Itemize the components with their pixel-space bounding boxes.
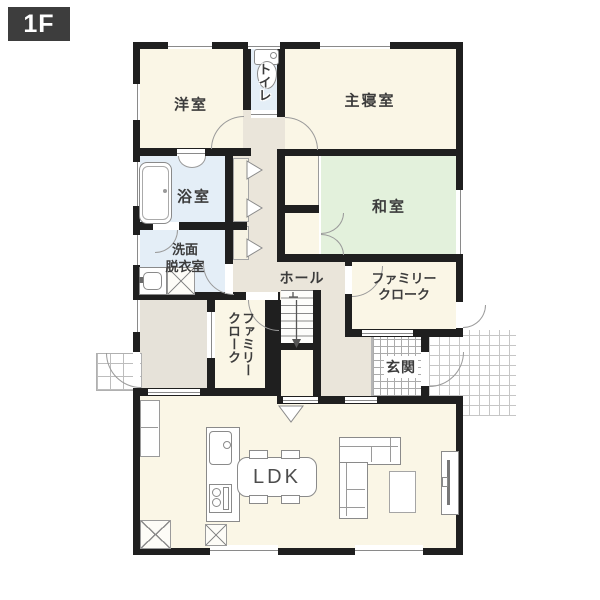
closet-door-opening [345, 266, 352, 294]
sliding-door [283, 397, 318, 403]
stairs [281, 290, 313, 343]
sliding-door [362, 330, 413, 336]
label-washroom-line2: 脱衣室 [165, 258, 204, 275]
label-master-bedroom: 主寝室 [344, 90, 395, 111]
door-arc-closet-exterior [463, 305, 486, 328]
label-family-closet-west-line1: ファミリー [240, 312, 255, 377]
closet-door-opening [246, 292, 278, 300]
sliding-door [345, 397, 377, 403]
label-washroom: 洗面 脱衣室 [165, 241, 204, 275]
chair-icon [281, 450, 300, 459]
bathtub-faucet [163, 189, 167, 193]
label-family-closet-east-line2: クローク [371, 287, 436, 303]
label-toilet: トイレ [255, 63, 274, 102]
label-family-closet-east-line1: ファミリー [371, 271, 436, 287]
window [133, 300, 140, 332]
floor-plan-1f: LDK 1F 洋室 トイレ 主寝室 浴室 和室 洗面 脱衣室 ホール ファミリー… [0, 0, 600, 600]
floor-understair-closet [281, 350, 313, 396]
storage-opening [207, 312, 215, 358]
sofa-icon [339, 462, 368, 519]
bathtub-inner [142, 166, 169, 220]
sofa-cushion-line [371, 446, 372, 462]
stove-grill [223, 487, 229, 510]
label-japanese-room: 和室 [372, 196, 406, 217]
sofa-arm-line [390, 438, 391, 462]
entrance-step-edge [371, 337, 373, 396]
wall [281, 343, 313, 350]
floor-access-hatch [140, 520, 171, 549]
window [168, 42, 212, 49]
window [248, 42, 280, 49]
window [210, 545, 278, 555]
window [133, 235, 140, 265]
counter-divider [140, 427, 158, 428]
wall [225, 156, 233, 264]
chair-icon [249, 495, 268, 504]
sliding-door [148, 389, 200, 395]
coffee-table-icon [389, 471, 416, 513]
tv-stand-nub [442, 477, 448, 487]
corridor-storage-niche [233, 226, 249, 260]
label-family-closet-west: ファミリー クローク [226, 312, 254, 377]
floor-closet-a [285, 156, 319, 205]
label-family-closet-west-line2: クローク [226, 312, 241, 364]
wall [277, 149, 463, 156]
label-hall: ホール [280, 268, 325, 288]
kitchen-faucet [223, 441, 231, 449]
stove-burner [212, 488, 221, 497]
floor-access-hatch [205, 524, 227, 546]
window [320, 42, 390, 49]
wall [243, 42, 251, 110]
corridor-storage-niche [233, 158, 249, 222]
vanity-bowl [143, 272, 162, 290]
floor-badge-text: 1F [23, 10, 54, 39]
stove-burner [212, 498, 221, 507]
fusuma-line [318, 156, 319, 205]
window [355, 545, 423, 555]
label-western-room: 洋室 [174, 94, 208, 115]
dining-table-icon: LDK [237, 457, 317, 497]
toilet-flush-button [270, 52, 277, 59]
wall [285, 205, 319, 213]
label-ldk: LDK [253, 466, 301, 489]
label-entrance: 玄関 [384, 356, 418, 378]
chair-icon [281, 495, 300, 504]
toilet-door [251, 110, 277, 118]
sofa-icon [339, 437, 401, 465]
wall [313, 290, 321, 404]
front-door-opening [421, 352, 429, 386]
closet-exterior-door-opening [456, 302, 463, 328]
sofa-arm-line [340, 507, 365, 508]
bath-counter-opening [177, 149, 205, 156]
vanity-tap [139, 277, 143, 283]
floor-storage-room [140, 300, 207, 388]
chair-icon [249, 450, 268, 459]
wall [285, 254, 463, 262]
floor-badge: 1F [8, 7, 70, 41]
label-washroom-line1: 洗面 [165, 241, 204, 258]
wall [277, 156, 285, 262]
window [456, 190, 463, 254]
label-bathroom: 浴室 [177, 186, 211, 207]
label-family-closet-east: ファミリー クローク [371, 271, 436, 303]
sofa-cushion-line [347, 489, 365, 490]
ldk-side-counter [140, 400, 160, 457]
floor-closet-b [285, 213, 319, 254]
window [133, 84, 140, 120]
